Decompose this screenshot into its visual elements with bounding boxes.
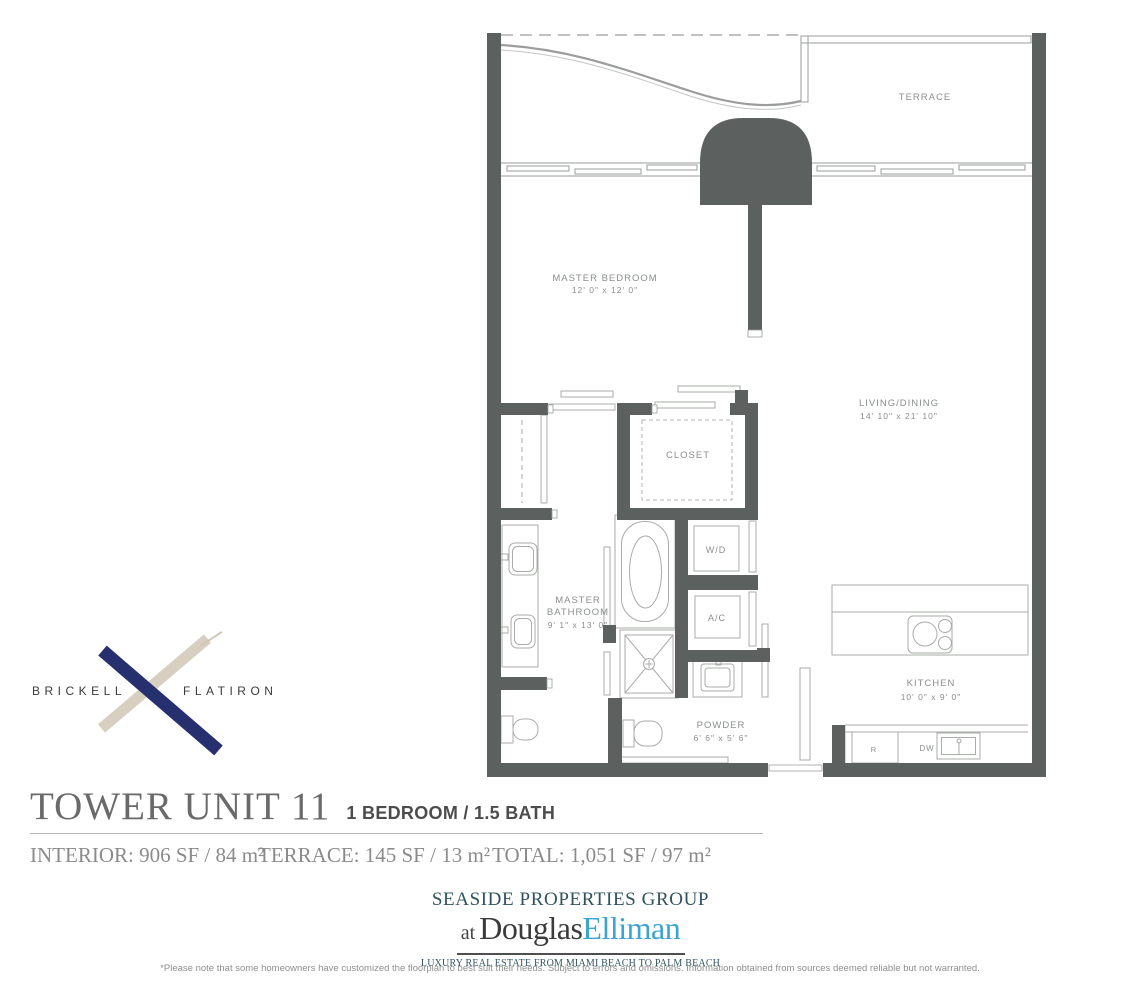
stat-interior: INTERIOR: 906 SF / 84 m² bbox=[30, 843, 264, 868]
title-row: TOWER UNIT 11 1 BEDROOM / 1.5 BATH bbox=[30, 784, 555, 829]
disclaimer-text: *Please note that some homeowners have c… bbox=[0, 963, 1140, 974]
room-dims-kitchen: 10' 0" x 9' 0" bbox=[901, 692, 962, 702]
area-stats: INTERIOR: 906 SF / 84 m² TERRACE: 145 SF… bbox=[0, 843, 1140, 869]
column bbox=[700, 118, 812, 337]
floor-plan: TERRACE MASTER BEDROOM 12' 0" x 12' 0" L… bbox=[485, 30, 1046, 780]
broker-elliman: Elliman bbox=[582, 910, 680, 946]
fixtures bbox=[499, 386, 1028, 771]
room-label-washer-dryer: W/D bbox=[706, 545, 727, 555]
logo-x-navy-stroke bbox=[98, 646, 222, 756]
terrace-curve bbox=[501, 45, 801, 109]
room-label-master-bathroom-2: BATHROOM bbox=[547, 607, 609, 618]
room-dims-living-dining: 14' 10" x 21' 10" bbox=[860, 411, 938, 421]
room-label-master-bedroom: MASTER BEDROOM bbox=[552, 273, 657, 284]
room-label-terrace: TERRACE bbox=[899, 92, 951, 103]
terrace-boundary bbox=[501, 35, 1031, 102]
room-label-living-dining: LIVING/DINING bbox=[859, 398, 939, 409]
page: TERRACE MASTER BEDROOM 12' 0" x 12' 0" L… bbox=[0, 0, 1140, 986]
logo-text-brickell: BRICKELL bbox=[32, 684, 126, 698]
brickell-flatiron-logo: BRICKELL FLATIRON bbox=[30, 626, 290, 768]
room-label-closet: CLOSET bbox=[666, 450, 710, 461]
stat-total: TOTAL: 1,051 SF / 97 m² bbox=[492, 843, 711, 868]
room-dims-powder: 6' 6" x 5' 6" bbox=[694, 733, 749, 743]
room-dims-master-bedroom: 12' 0" x 12' 0" bbox=[572, 285, 638, 295]
stat-terrace: TERRACE: 145 SF / 13 m² bbox=[258, 843, 490, 868]
broker-logo: SEASIDE PROPERTIES GROUP at DouglasEllim… bbox=[420, 889, 721, 969]
logo-text-flatiron: FLATIRON bbox=[183, 684, 277, 698]
room-label-powder: POWDER bbox=[697, 720, 746, 731]
room-label-kitchen: KITCHEN bbox=[907, 678, 956, 689]
appliance-label-dishwasher: DW bbox=[919, 744, 934, 753]
title-divider bbox=[30, 833, 763, 834]
room-dims-master-bathroom: 9' 1" x 13' 0" bbox=[548, 620, 609, 630]
room-label-master-bathroom-1: MASTER bbox=[555, 595, 601, 606]
broker-at: at bbox=[461, 922, 475, 944]
appliance-label-refrigerator: R bbox=[871, 745, 877, 754]
broker-name-line: at DouglasElliman bbox=[420, 912, 721, 951]
page-title: TOWER UNIT 11 bbox=[30, 784, 330, 829]
broker-douglas: Douglas bbox=[479, 910, 582, 946]
broker-group-name: SEASIDE PROPERTIES GROUP bbox=[420, 889, 721, 911]
broker-divider bbox=[457, 953, 685, 955]
room-label-ac: A/C bbox=[708, 613, 726, 623]
unit-configuration: 1 BEDROOM / 1.5 BATH bbox=[346, 803, 555, 824]
wall-caps bbox=[547, 405, 657, 688]
